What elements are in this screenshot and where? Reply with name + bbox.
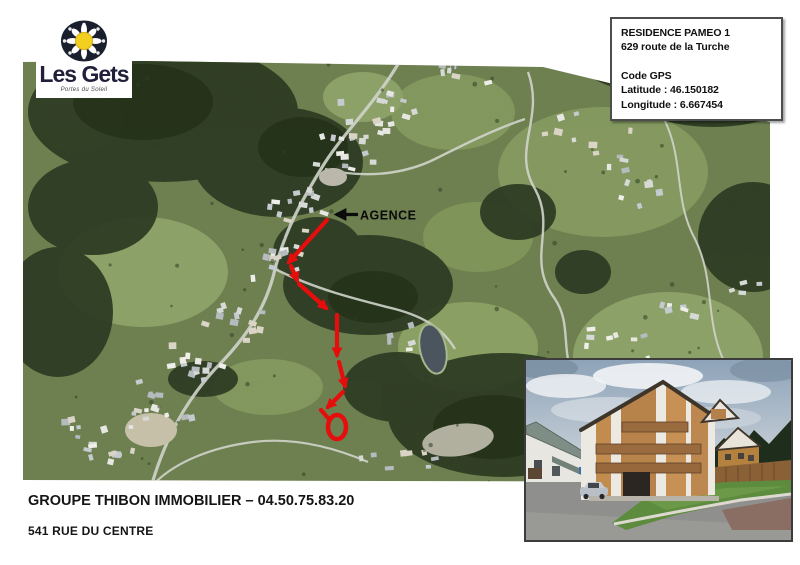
gps-code-label: Code GPS	[621, 69, 777, 83]
sun-emblem-icon	[59, 19, 109, 63]
agency-name-phone: GROUPE THIBON IMMOBILIER – 04.50.75.83.2…	[28, 493, 354, 509]
agency-street: 541 RUE DU CENTRE	[28, 524, 153, 538]
gps-info-box: RESIDENCE PAMEO 1 629 route de la Turche…	[610, 17, 783, 121]
residence-photo-image	[526, 360, 791, 540]
entrance	[623, 472, 650, 498]
residence-photo	[524, 358, 793, 542]
gps-latitude: Latitude : 46.150182	[621, 83, 777, 97]
page: { "logo": { "title": "Les Gets", "subtit…	[0, 0, 800, 565]
les-gets-logo: Les Gets Portes du Soleil	[36, 19, 132, 98]
logo-subtitle: Portes du Soleil	[61, 87, 108, 93]
residence-address: 629 route de la Turche	[621, 40, 777, 54]
gps-longitude: Longitude : 6.667454	[621, 98, 777, 112]
logo-title: Les Gets	[39, 63, 128, 86]
residence-name: RESIDENCE PAMEO 1	[621, 26, 777, 40]
spacer	[621, 55, 777, 69]
